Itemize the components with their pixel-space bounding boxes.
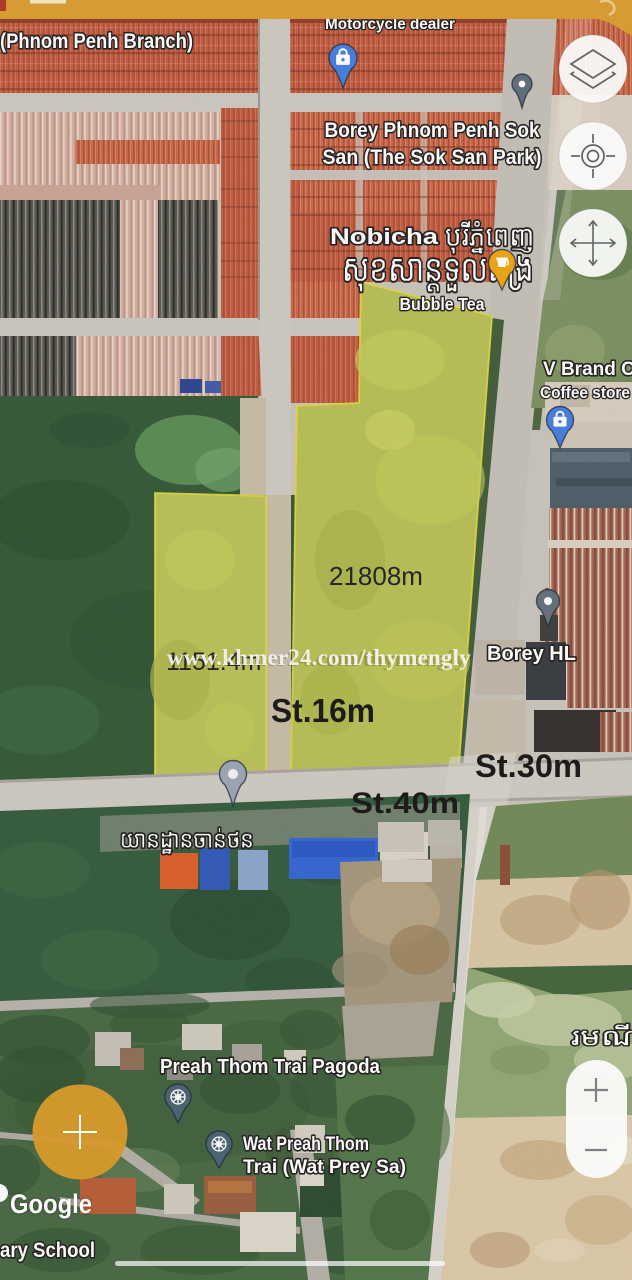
svg-text:Google: Google bbox=[10, 1189, 92, 1219]
